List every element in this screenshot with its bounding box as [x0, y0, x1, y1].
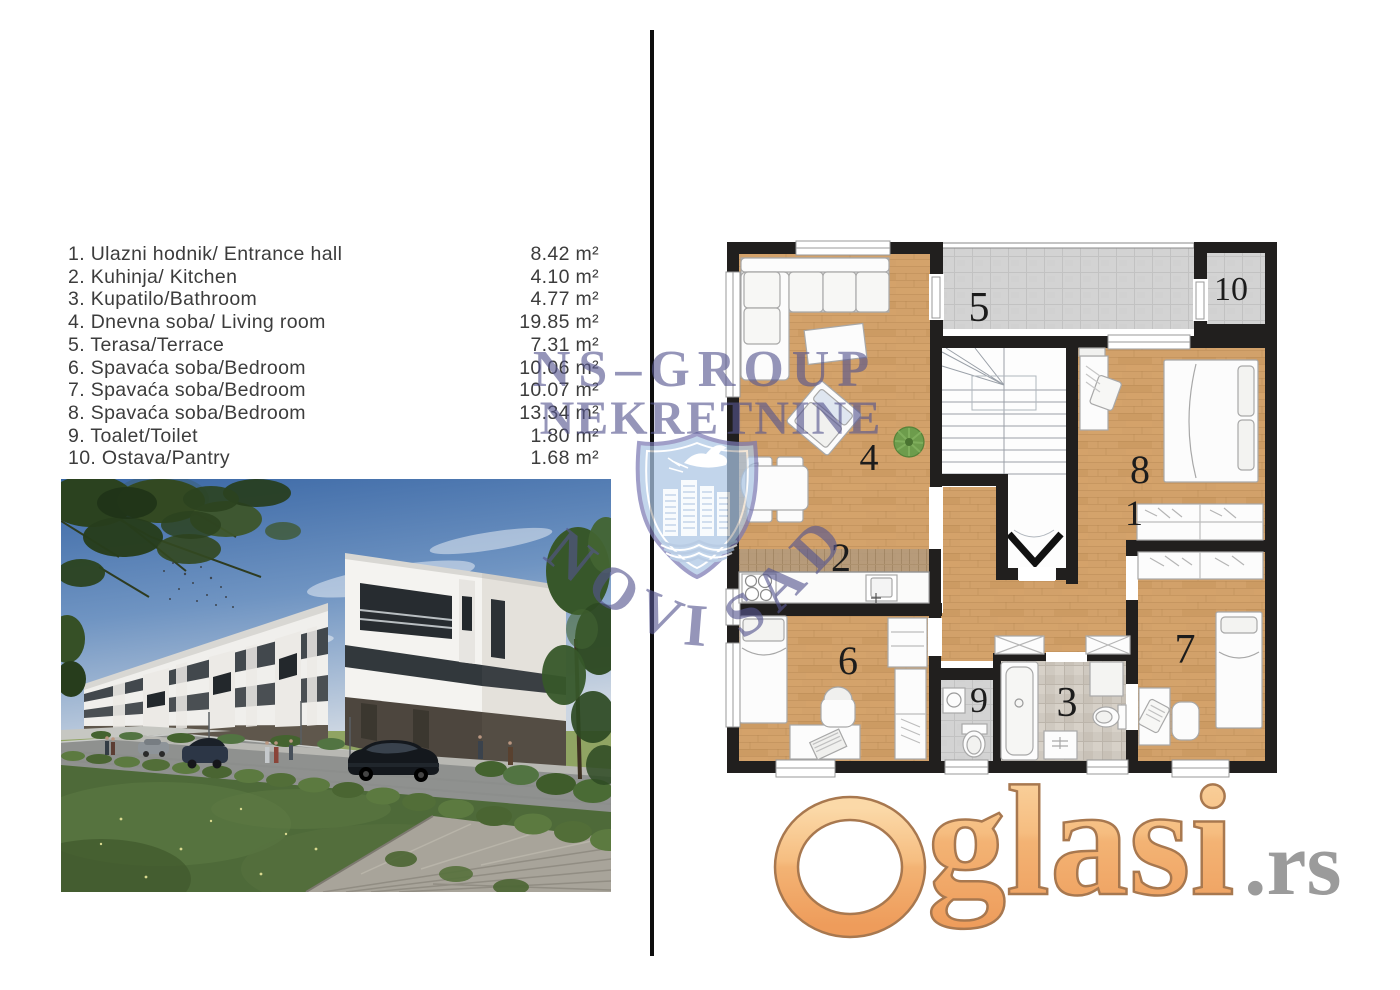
svg-text:.rs: .rs: [1244, 815, 1341, 914]
svg-text:NEKRETNINE: NEKRETNINE: [540, 392, 883, 445]
svg-text:7: 7: [1175, 627, 1196, 673]
svg-text:6: 6: [838, 638, 858, 683]
svg-text:1: 1: [1125, 493, 1143, 533]
svg-text:8: 8: [1130, 447, 1150, 492]
svg-text:glasi: glasi: [927, 754, 1234, 929]
svg-text:10: 10: [1214, 271, 1248, 308]
svg-text:NS–GROUP: NS–GROUP: [533, 341, 877, 398]
svg-text:9: 9: [970, 680, 988, 720]
svg-text:3: 3: [1057, 680, 1078, 726]
svg-text:5: 5: [969, 285, 990, 331]
